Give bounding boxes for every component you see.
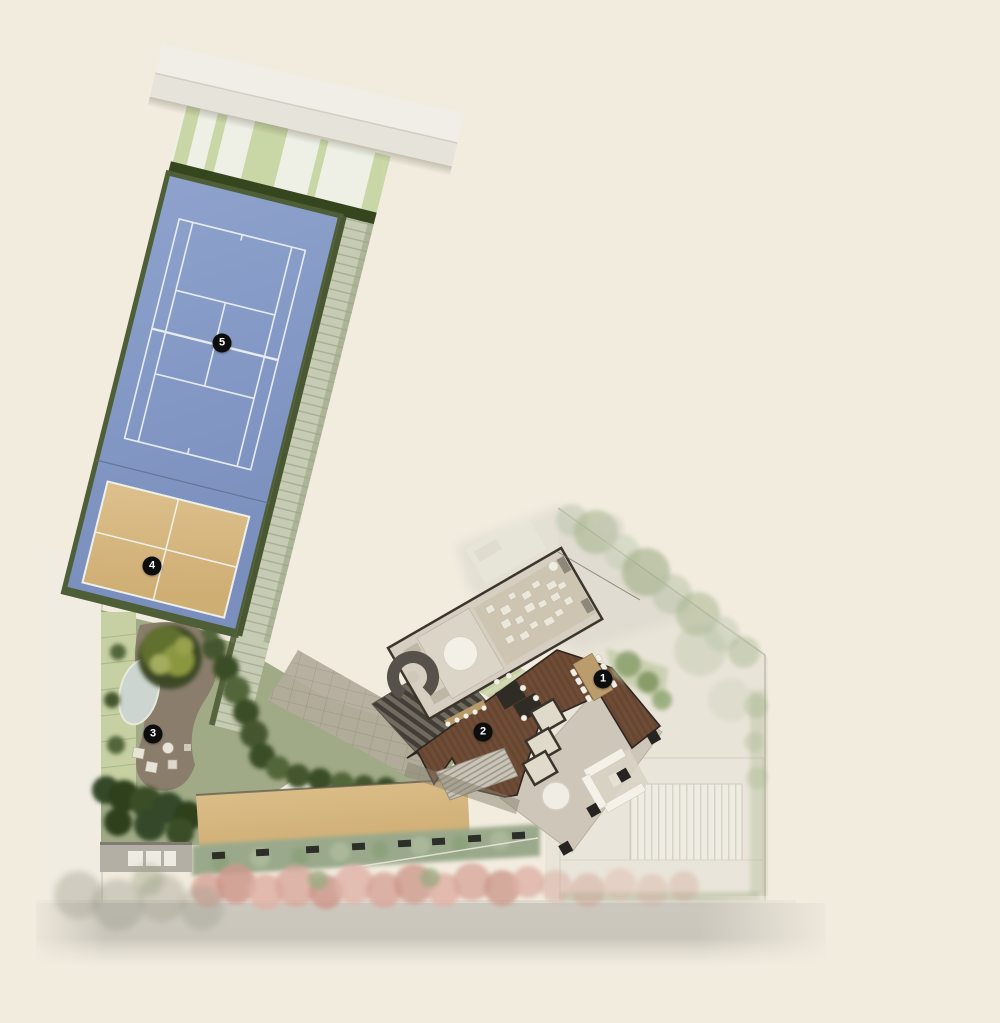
marker-3[interactable]: 3 xyxy=(144,725,163,744)
site-plan-drawing xyxy=(0,0,1000,1023)
site-plan: 1 2 3 4 5 xyxy=(0,0,1000,1023)
left-sidewalk xyxy=(44,552,104,914)
marker-1[interactable]: 1 xyxy=(594,670,613,689)
marker-5[interactable]: 5 xyxy=(213,334,232,353)
marker-2[interactable]: 2 xyxy=(474,723,493,742)
round-spa xyxy=(542,782,570,810)
platform-stairs xyxy=(630,784,742,860)
large-tree xyxy=(138,625,202,689)
marker-4[interactable]: 4 xyxy=(143,557,162,576)
